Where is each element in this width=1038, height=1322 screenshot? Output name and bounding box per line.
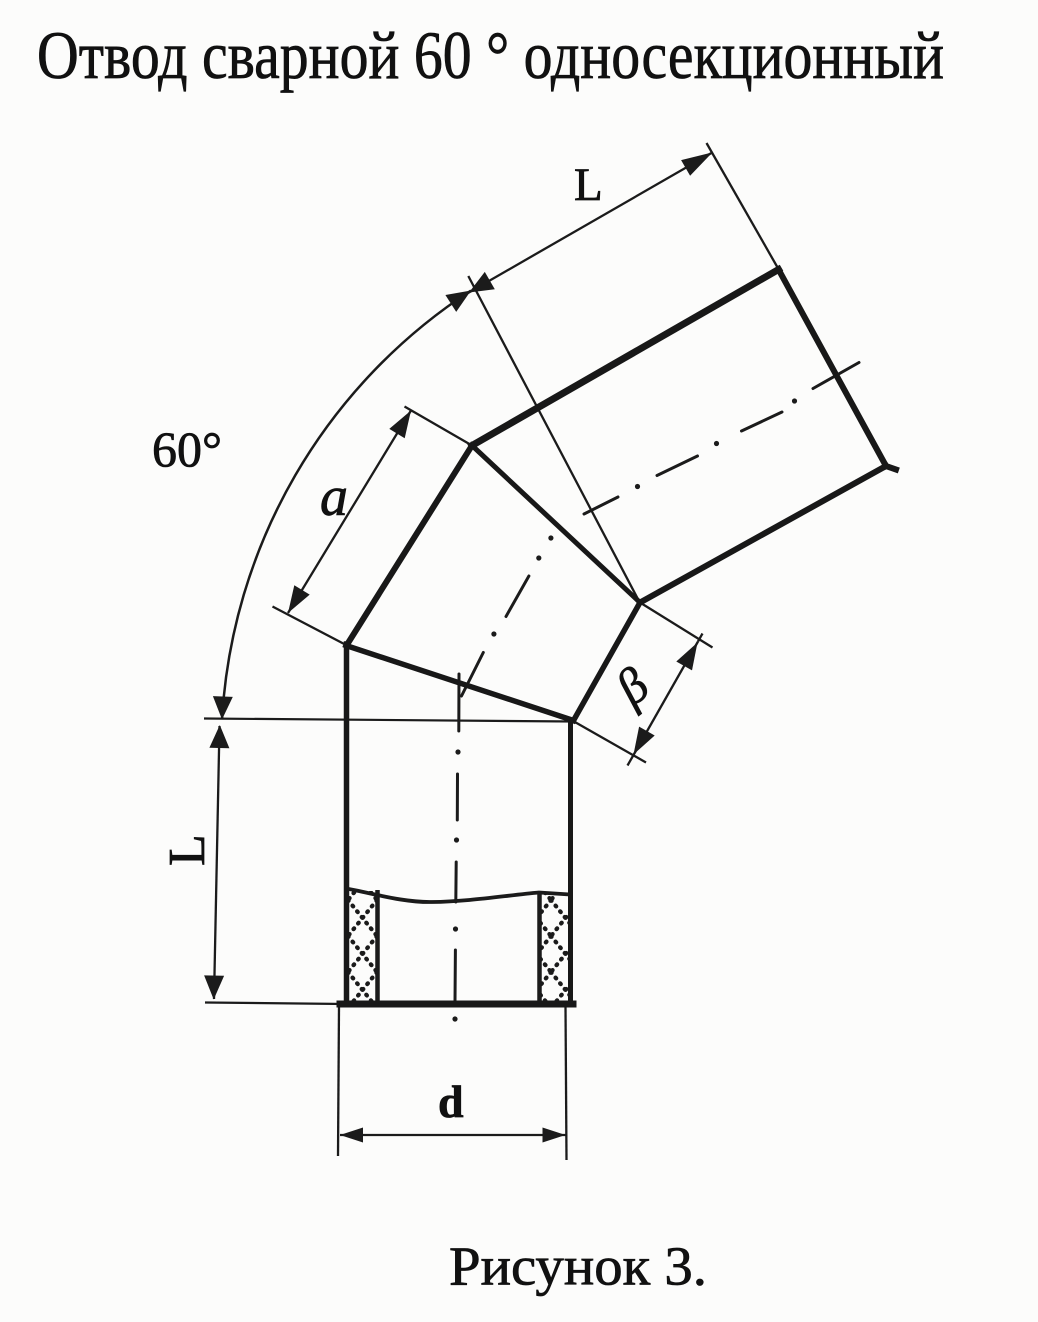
svg-text:d: d <box>438 1076 464 1127</box>
svg-text:L: L <box>574 159 603 211</box>
svg-text:β: β <box>604 656 659 716</box>
svg-text:60°: 60° <box>152 421 222 477</box>
svg-text:a: a <box>320 466 348 528</box>
svg-text:L: L <box>159 834 216 866</box>
svg-text:Рисунок 3.: Рисунок 3. <box>449 1236 707 1297</box>
svg-text:Отвод сварной 60 ° односекцион: Отвод сварной 60 ° односекционный <box>37 17 944 93</box>
